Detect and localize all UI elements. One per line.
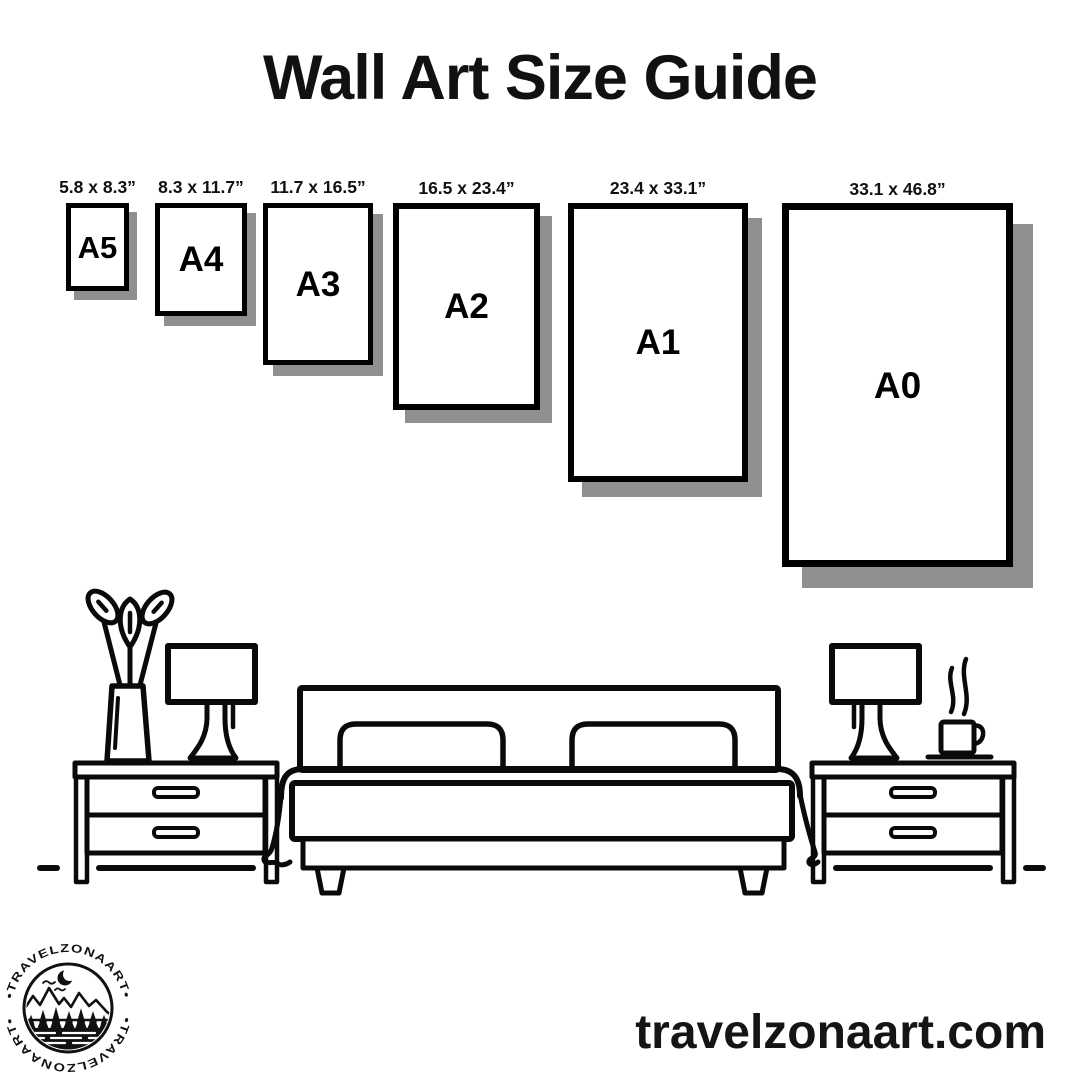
table-lamp-icon [168,646,255,758]
steam-icon [950,668,953,712]
size-dimensions-a2: 16.5 x 23.4” [418,178,514,199]
size-frame-a5: 5.8 x 8.3” A5 [66,203,129,291]
size-name-a3: A3 [296,267,341,302]
size-dimensions-a5: 5.8 x 8.3” [59,177,136,198]
size-name-a2: A2 [444,289,489,324]
size-frame-a4: 8.3 x 11.7” A4 [155,203,247,316]
website-url: travelzonaart.com [635,1005,1046,1060]
flower-vase-icon [82,586,177,761]
table-lamp-icon [832,646,919,758]
bed-leg-icon [317,868,344,893]
bed-leg-icon [740,868,767,893]
size-frame-a0: 33.1 x 46.8” A0 [782,203,1013,567]
size-guide-poster: Wall Art Size Guide 5.8 x 8.3” A5 8.3 x … [0,0,1080,1080]
size-name-a0: A0 [874,367,921,404]
bedroom-illustration [30,575,1050,905]
lake-icon [21,1028,115,1052]
pillow-icon [340,724,503,769]
coffee-cup-icon [928,659,991,757]
size-name-a4: A4 [179,242,224,277]
nightstand-icon [75,763,277,882]
size-dimensions-a3: 11.7 x 16.5” [270,177,365,198]
size-dimensions-a4: 8.3 x 11.7” [158,177,244,198]
size-dimensions-a1: 23.4 x 33.1” [610,178,706,199]
size-name-a1: A1 [636,325,681,360]
brand-logo: •TRAVELZONAART• •TRAVELZONAART• [3,932,133,1080]
drawer-handle-icon [154,788,198,797]
size-dimensions-a0: 33.1 x 46.8” [849,179,945,200]
page-title: Wall Art Size Guide [0,42,1080,114]
pillow-icon [572,724,735,769]
bed-icon [264,688,818,893]
size-frame-a2: 16.5 x 23.4” A2 [393,203,540,410]
size-name-a5: A5 [78,232,118,263]
drawer-handle-icon [154,828,198,837]
size-frame-a3: 11.7 x 16.5” A3 [263,203,373,365]
steam-icon [964,659,967,714]
mattress-icon [292,783,792,839]
nightstand-icon [812,763,1014,882]
size-frame-a1: 23.4 x 33.1” A1 [568,203,748,482]
